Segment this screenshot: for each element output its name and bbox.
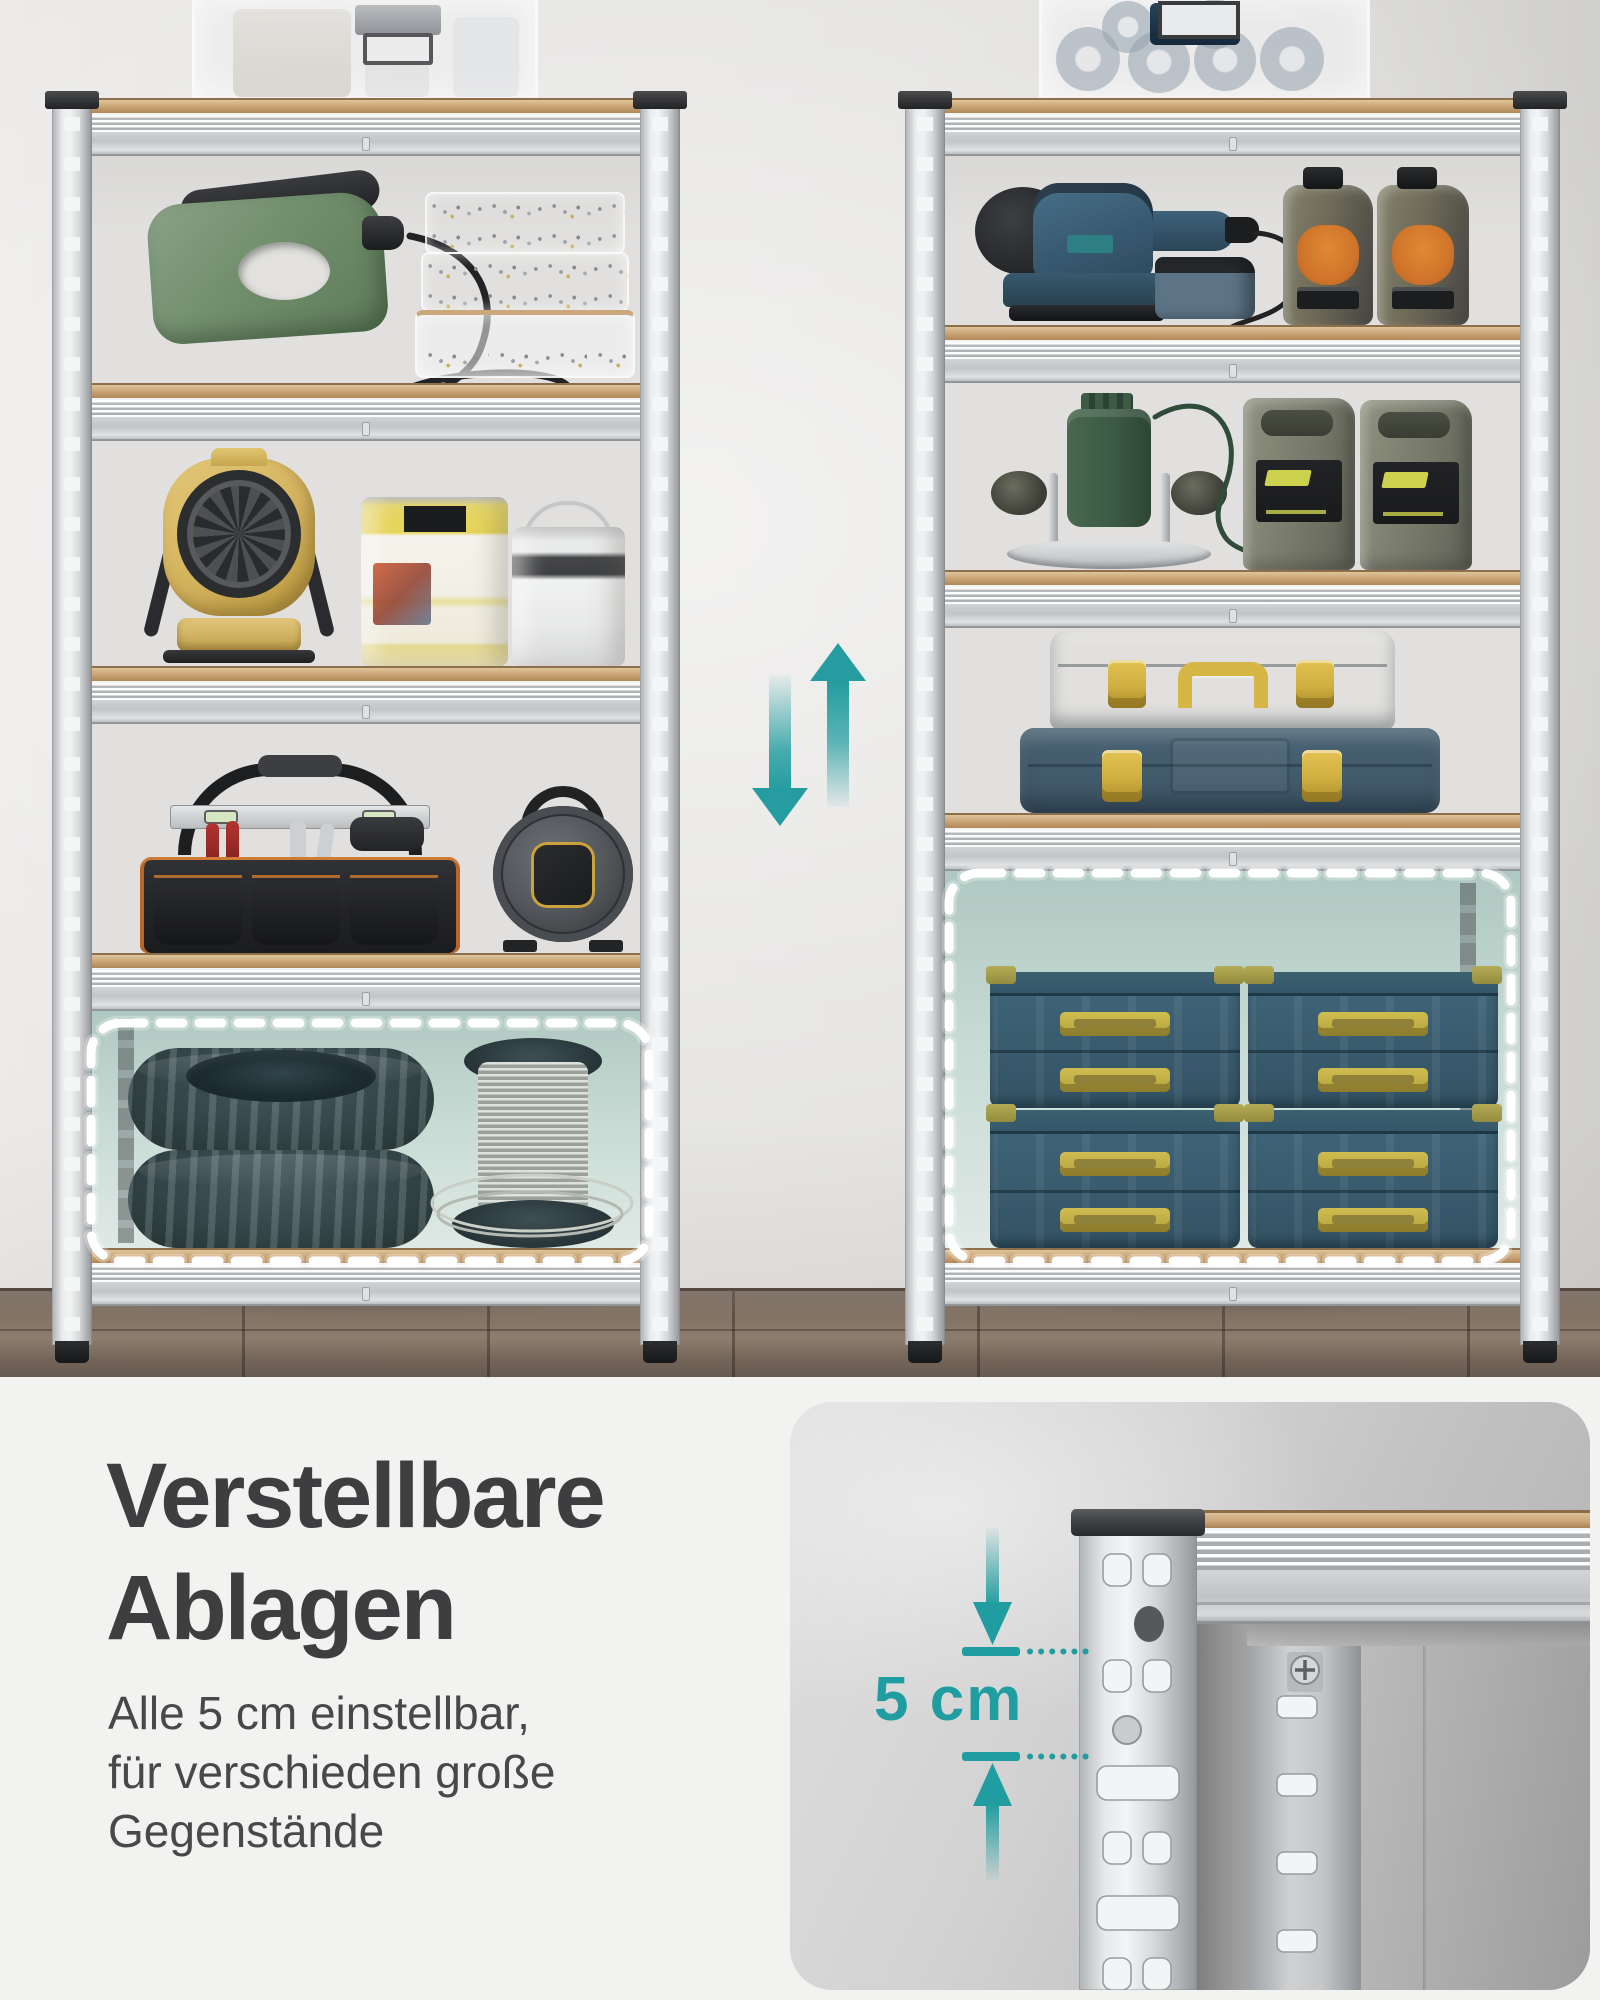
reel-window <box>531 842 595 908</box>
shelf-board <box>52 98 680 156</box>
post-foot <box>1523 1341 1557 1363</box>
oil-bottle-label <box>1297 225 1359 285</box>
dimension-tick-bottom <box>962 1752 1020 1761</box>
shelf-wood-edge <box>905 813 1560 828</box>
toolbox-latch <box>1108 660 1146 708</box>
mallet-head <box>350 817 424 851</box>
headline-line-2: Ablagen <box>106 1552 746 1664</box>
screw-organizer-stack <box>415 192 635 378</box>
description-line-3: Gegenstände <box>108 1802 668 1861</box>
shelf-wood-edge <box>52 953 680 968</box>
tool-tote-bag <box>140 763 460 953</box>
oil-jug <box>1243 398 1355 570</box>
description-line-2: für verschieden große <box>108 1743 668 1802</box>
fan-foot <box>163 650 315 663</box>
toolbox-lower <box>1020 728 1440 813</box>
cable-reel <box>493 790 633 953</box>
highlight-dashed-border-right <box>942 866 1518 1268</box>
jug-label <box>1256 460 1342 522</box>
tote-pocket <box>252 875 340 945</box>
stapler-handle-hole <box>238 242 330 300</box>
inset-back-wall <box>1361 1646 1590 1990</box>
unit-post-left <box>905 93 945 1345</box>
oil-bottle <box>1377 185 1469 325</box>
sander-pad <box>1009 305 1165 321</box>
reel-foot <box>503 940 537 952</box>
jobsite-fan <box>155 458 325 663</box>
shelf-board <box>905 570 1560 628</box>
jug-handle-recess <box>1261 410 1333 436</box>
shelf-wood-edge <box>905 570 1560 585</box>
info-section: Verstellbare Ablagen Alle 5 cm einstellb… <box>0 1377 1600 2000</box>
closeup-inset-photo: 5 cm <box>790 1402 1590 1990</box>
oil-bottle <box>1283 185 1373 325</box>
post-corner-cap <box>898 91 952 109</box>
post-corner-cap <box>633 91 687 109</box>
fan-battery-base <box>177 618 301 652</box>
orbital-sander <box>975 173 1255 325</box>
shelf-wood-edge <box>905 98 1560 113</box>
screw-compartment <box>593 343 633 377</box>
arrow-up-icon <box>973 1763 1012 1806</box>
unit-post-right <box>1520 93 1560 1345</box>
inset-steel-beam <box>1197 1528 1590 1624</box>
inset-wood-board <box>1197 1510 1590 1528</box>
shelf-board <box>905 813 1560 871</box>
post-foot <box>908 1341 942 1363</box>
fan-top-tab <box>211 448 267 466</box>
toolbox-upper <box>1050 630 1395 730</box>
tote-pocket <box>350 875 438 945</box>
router-guide-rod <box>1049 473 1058 549</box>
electric-stapler <box>150 180 400 345</box>
toolbox-latch <box>1102 750 1142 802</box>
reel-foot <box>589 940 623 952</box>
sander-label <box>1067 235 1113 253</box>
shelf-steel-beam <box>905 828 1560 871</box>
shelf-board <box>52 953 680 1011</box>
shelf-wood-edge <box>52 383 680 398</box>
tote-handle-grip <box>258 755 342 777</box>
clear-screw-box <box>421 252 629 312</box>
description-line-1: Alle 5 cm einstellbar, <box>108 1684 668 1743</box>
plunge-router <box>985 393 1245 570</box>
shelf-board <box>52 383 680 441</box>
toolbox-handle <box>1178 662 1268 708</box>
shelf-steel-beam <box>905 585 1560 628</box>
jar-silhouette <box>453 17 519 97</box>
measurement-label: 5 cm <box>874 1664 1023 1735</box>
tape-roll <box>1260 27 1324 91</box>
post-foot <box>643 1341 677 1363</box>
shelf-adjust-arrows-icon <box>730 630 910 840</box>
paint-can-yellow <box>361 497 508 666</box>
dimension-tick-top <box>962 1647 1020 1656</box>
dimension-arrow-up-shaft <box>986 1804 999 1880</box>
paint-can-body <box>512 527 625 666</box>
shelf-wood-edge <box>52 666 680 681</box>
paint-can-silhouette <box>233 9 351 97</box>
shelf-board <box>905 98 1560 156</box>
label-plate <box>363 33 433 65</box>
shelf-steel-beam <box>52 398 680 441</box>
arrow-down-icon <box>752 675 808 826</box>
clear-organizer-case <box>415 310 635 378</box>
screw-compartment <box>423 343 489 377</box>
paint-can-gray <box>512 497 625 666</box>
shelf-board <box>52 666 680 724</box>
screw-compartment <box>495 343 587 377</box>
post-corner-cap <box>1513 91 1567 109</box>
oil-jug <box>1360 400 1472 570</box>
jug-label <box>1373 462 1459 524</box>
shelf-steel-beam <box>52 968 680 1011</box>
oil-bottle-label <box>1392 225 1454 285</box>
headline: Verstellbare Ablagen <box>106 1440 746 1664</box>
tape-dispenser <box>1150 3 1240 45</box>
shelf-steel-beam <box>52 1263 680 1306</box>
headline-line-1: Verstellbare <box>106 1440 746 1552</box>
product-marketing-image: Verstellbare Ablagen Alle 5 cm einstellb… <box>0 0 1600 2000</box>
shelf-steel-beam <box>905 340 1560 383</box>
shelf-steel-beam <box>905 1263 1560 1306</box>
shelf-steel-beam <box>52 681 680 724</box>
shelf-board <box>905 325 1560 383</box>
description-text: Alle 5 cm einstellbar, für verschieden g… <box>108 1684 668 1861</box>
translucent-storage-bin-right <box>1039 0 1370 101</box>
metal-lid <box>355 5 441 35</box>
sander-base <box>1003 273 1171 307</box>
arrow-down-icon <box>973 1602 1012 1645</box>
router-handle-left <box>991 471 1047 515</box>
shelf-steel-beam <box>905 113 1560 156</box>
inset-inner-post-slots <box>1247 1646 1361 1990</box>
shelf-wood-edge <box>52 98 680 113</box>
arrow-up-icon <box>810 643 866 807</box>
translucent-storage-bin-left <box>192 0 538 101</box>
sander-motor-body <box>1033 183 1153 279</box>
highlight-dashed-border-left <box>84 1016 656 1268</box>
toolbox-panel <box>1170 738 1290 794</box>
fan-grill <box>177 470 301 598</box>
post-corner-cap <box>45 91 99 109</box>
post-foot <box>55 1341 89 1363</box>
toolbox-latch <box>1302 750 1342 802</box>
toolbox-latch <box>1296 660 1334 708</box>
shelf-wood-edge <box>905 325 1560 340</box>
shelf-steel-beam <box>52 113 680 156</box>
jug-handle-recess <box>1378 412 1450 438</box>
tote-pocket <box>154 875 242 945</box>
clear-screw-box <box>425 192 625 254</box>
dimension-arrow-down-shaft <box>986 1528 999 1606</box>
inset-depth-shadow <box>1197 1624 1247 1990</box>
